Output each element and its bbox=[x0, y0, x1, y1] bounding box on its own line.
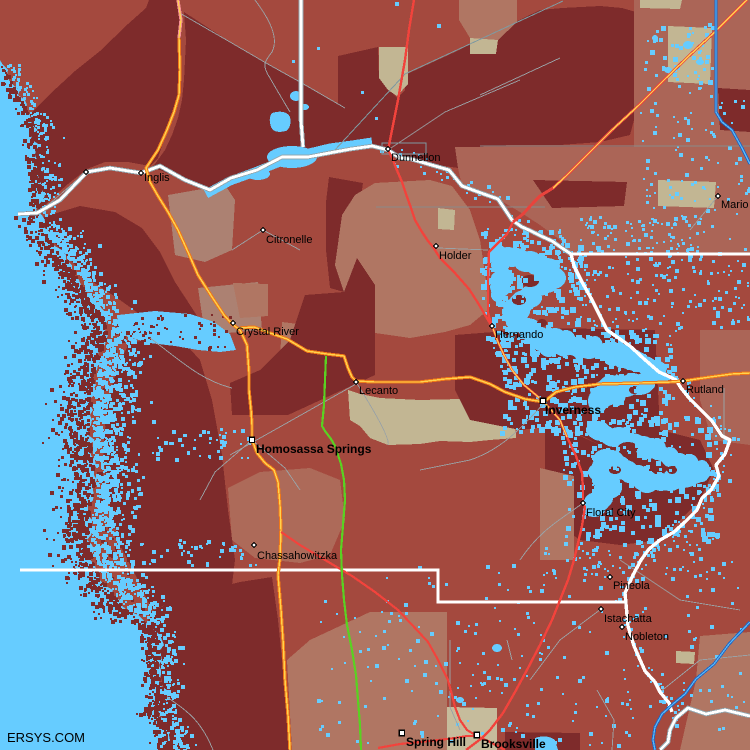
svg-text:Mario: Mario bbox=[721, 199, 749, 211]
svg-text:ERSYS.COM: ERSYS.COM bbox=[7, 730, 85, 745]
svg-text:Homosassa Springs: Homosassa Springs bbox=[256, 442, 372, 456]
svg-text:Istachatta: Istachatta bbox=[604, 613, 653, 625]
svg-text:Chassahowitzka: Chassahowitzka bbox=[257, 550, 338, 562]
svg-text:Rutland: Rutland bbox=[686, 384, 724, 396]
svg-text:Citronelle: Citronelle bbox=[266, 234, 312, 246]
svg-text:Hernando: Hernando bbox=[495, 329, 543, 341]
svg-text:Dunnellon: Dunnellon bbox=[391, 152, 441, 164]
svg-text:Inverness: Inverness bbox=[545, 403, 601, 417]
svg-text:Crystal River: Crystal River bbox=[236, 326, 299, 338]
svg-text:Nobleton: Nobleton bbox=[625, 631, 669, 643]
svg-text:Pineola: Pineola bbox=[613, 580, 651, 592]
svg-text:Inglis: Inglis bbox=[144, 172, 170, 184]
svg-text:Holder: Holder bbox=[439, 250, 472, 262]
svg-text:Brooksville: Brooksville bbox=[481, 737, 546, 750]
svg-text:Floral City: Floral City bbox=[586, 507, 636, 519]
svg-text:Spring Hill: Spring Hill bbox=[406, 735, 466, 749]
svg-text:Lecanto: Lecanto bbox=[359, 385, 398, 397]
